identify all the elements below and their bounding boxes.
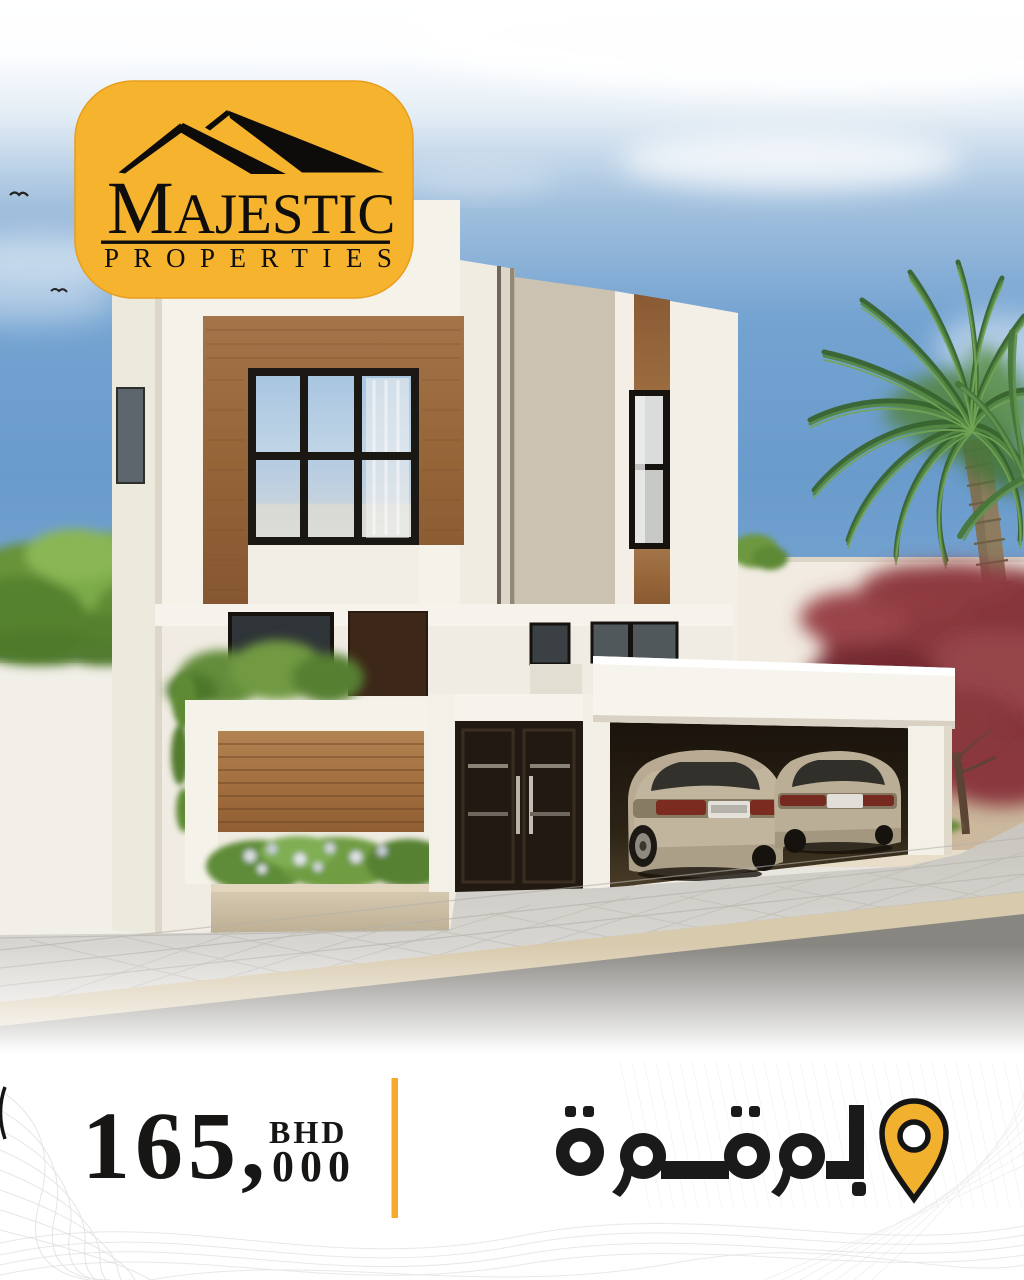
svg-text:PROPERTIES: PROPERTIES bbox=[104, 243, 406, 273]
svg-text:165,: 165, bbox=[82, 1092, 270, 1199]
svg-text:000: 000 bbox=[272, 1142, 356, 1191]
